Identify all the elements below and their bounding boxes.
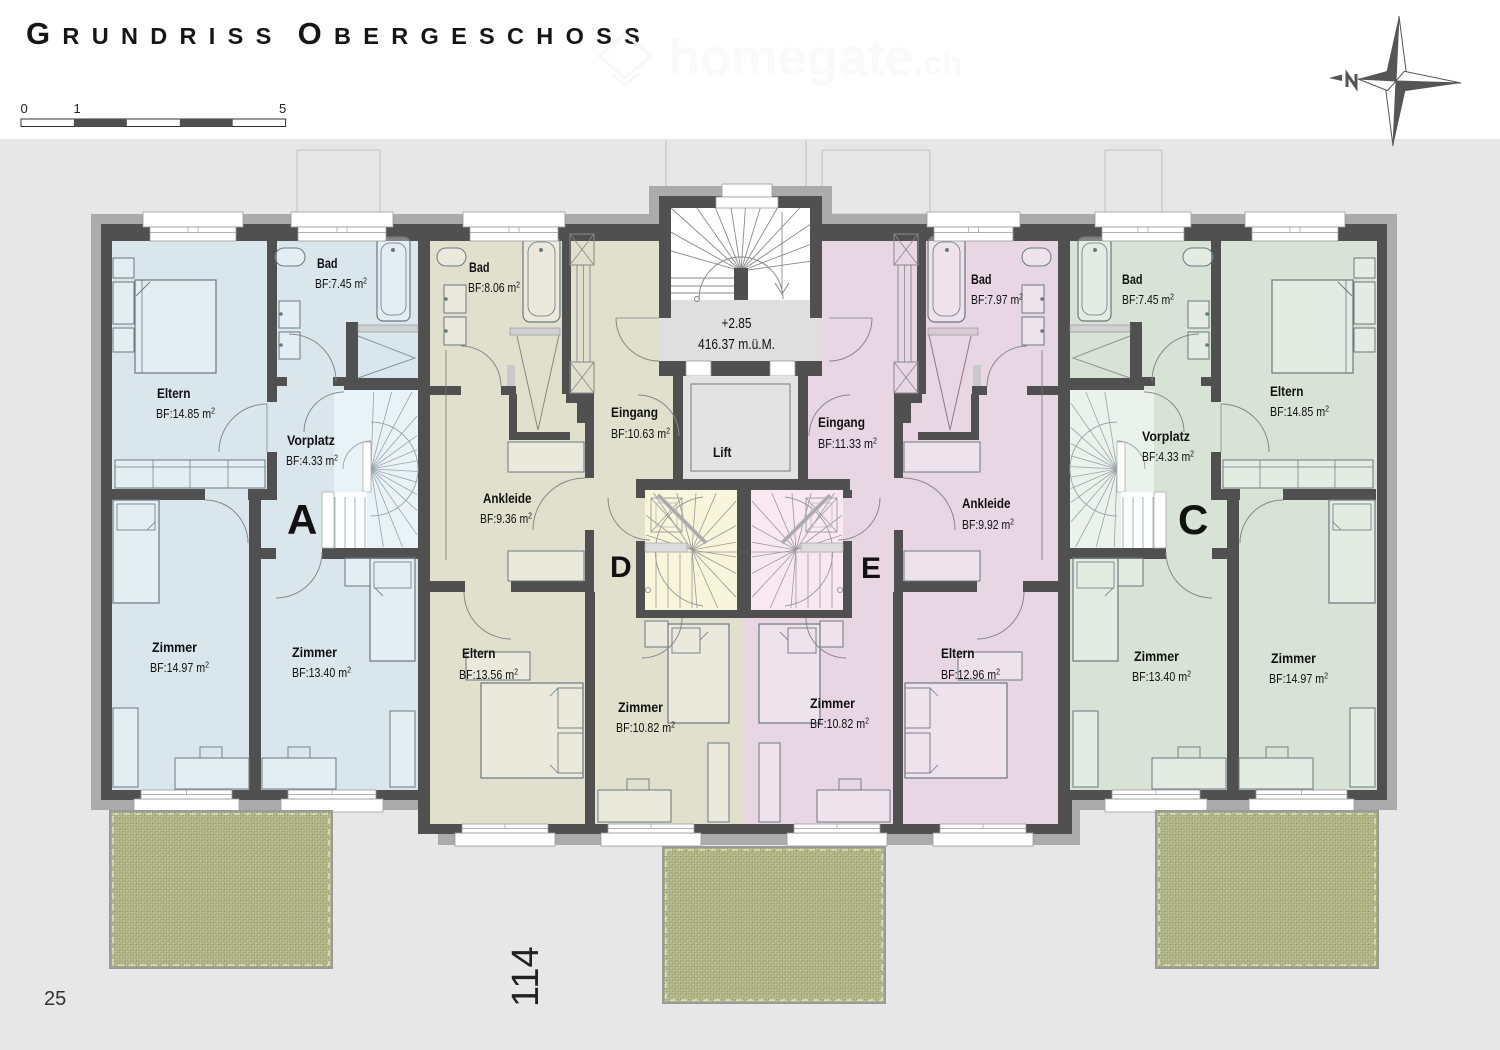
- svg-text:D: D: [610, 551, 632, 584]
- svg-text:5: 5: [279, 101, 286, 116]
- svg-text:Zimmer: Zimmer: [1134, 649, 1180, 664]
- svg-text:BF:7.97 m2: BF:7.97 m2: [971, 292, 1023, 308]
- svg-text:Eingang: Eingang: [611, 405, 658, 420]
- svg-text:BF:14.85 m2: BF:14.85 m2: [1270, 404, 1329, 420]
- svg-text:C: C: [1178, 496, 1208, 543]
- svg-text:Zimmer: Zimmer: [152, 640, 198, 655]
- svg-text:BF:10.63 m2: BF:10.63 m2: [611, 426, 670, 442]
- svg-text:0: 0: [21, 101, 28, 116]
- svg-text:Zimmer: Zimmer: [810, 696, 856, 711]
- svg-text:Eltern: Eltern: [1270, 384, 1304, 399]
- svg-text:416.37 m.ü.M.: 416.37 m.ü.M.: [698, 337, 775, 353]
- svg-text:Bad: Bad: [469, 260, 490, 275]
- svg-text:114: 114: [505, 946, 547, 1007]
- svg-text:BF:8.06 m2: BF:8.06 m2: [468, 280, 520, 296]
- svg-text:+2.85: +2.85: [722, 316, 752, 332]
- svg-text:25: 25: [44, 988, 66, 1010]
- svg-text:Eingang: Eingang: [818, 415, 865, 430]
- svg-text:BF:4.33 m2: BF:4.33 m2: [1142, 449, 1194, 465]
- svg-text:BF:10.82 m2: BF:10.82 m2: [616, 720, 675, 736]
- svg-text:Zimmer: Zimmer: [618, 700, 664, 715]
- svg-text:Eltern: Eltern: [157, 386, 191, 401]
- svg-text:Vorplatz: Vorplatz: [287, 433, 335, 448]
- svg-text:1: 1: [74, 101, 81, 116]
- svg-text:Bad: Bad: [1122, 272, 1143, 287]
- svg-text:BF:7.45 m2: BF:7.45 m2: [1122, 292, 1174, 308]
- svg-text:BF:9.92 m2: BF:9.92 m2: [962, 517, 1014, 533]
- svg-text:Vorplatz: Vorplatz: [1142, 429, 1190, 444]
- svg-text:BF:11.33 m2: BF:11.33 m2: [818, 436, 877, 452]
- svg-text:Lift: Lift: [713, 445, 732, 460]
- svg-text:BF:13.56 m2: BF:13.56 m2: [459, 667, 518, 683]
- svg-text:Ankleide: Ankleide: [962, 496, 1011, 511]
- svg-text:BF:13.40 m2: BF:13.40 m2: [1132, 669, 1191, 685]
- svg-text:Eltern: Eltern: [941, 646, 975, 661]
- svg-text:BF:12.96 m2: BF:12.96 m2: [941, 667, 1000, 683]
- svg-text:Zimmer: Zimmer: [1271, 651, 1317, 666]
- svg-text:Eltern: Eltern: [462, 646, 496, 661]
- svg-text:Bad: Bad: [971, 272, 992, 287]
- svg-text:BF:14.85 m2: BF:14.85 m2: [156, 406, 215, 422]
- svg-text:Ankleide: Ankleide: [483, 491, 532, 506]
- svg-text:A: A: [287, 496, 317, 543]
- svg-text:BF:9.36 m2: BF:9.36 m2: [480, 511, 532, 527]
- svg-text:BF:14.97 m2: BF:14.97 m2: [1269, 671, 1328, 687]
- svg-text:Bad: Bad: [317, 256, 338, 271]
- svg-text:BF:4.33 m2: BF:4.33 m2: [286, 453, 338, 469]
- svg-text:BF:13.40 m2: BF:13.40 m2: [292, 665, 351, 681]
- svg-text:E: E: [861, 552, 881, 585]
- svg-text:Zimmer: Zimmer: [292, 645, 338, 660]
- svg-text:BF:10.82 m2: BF:10.82 m2: [810, 716, 869, 732]
- svg-text:BF:14.97 m2: BF:14.97 m2: [150, 660, 209, 676]
- svg-text:BF:7.45 m2: BF:7.45 m2: [315, 276, 367, 292]
